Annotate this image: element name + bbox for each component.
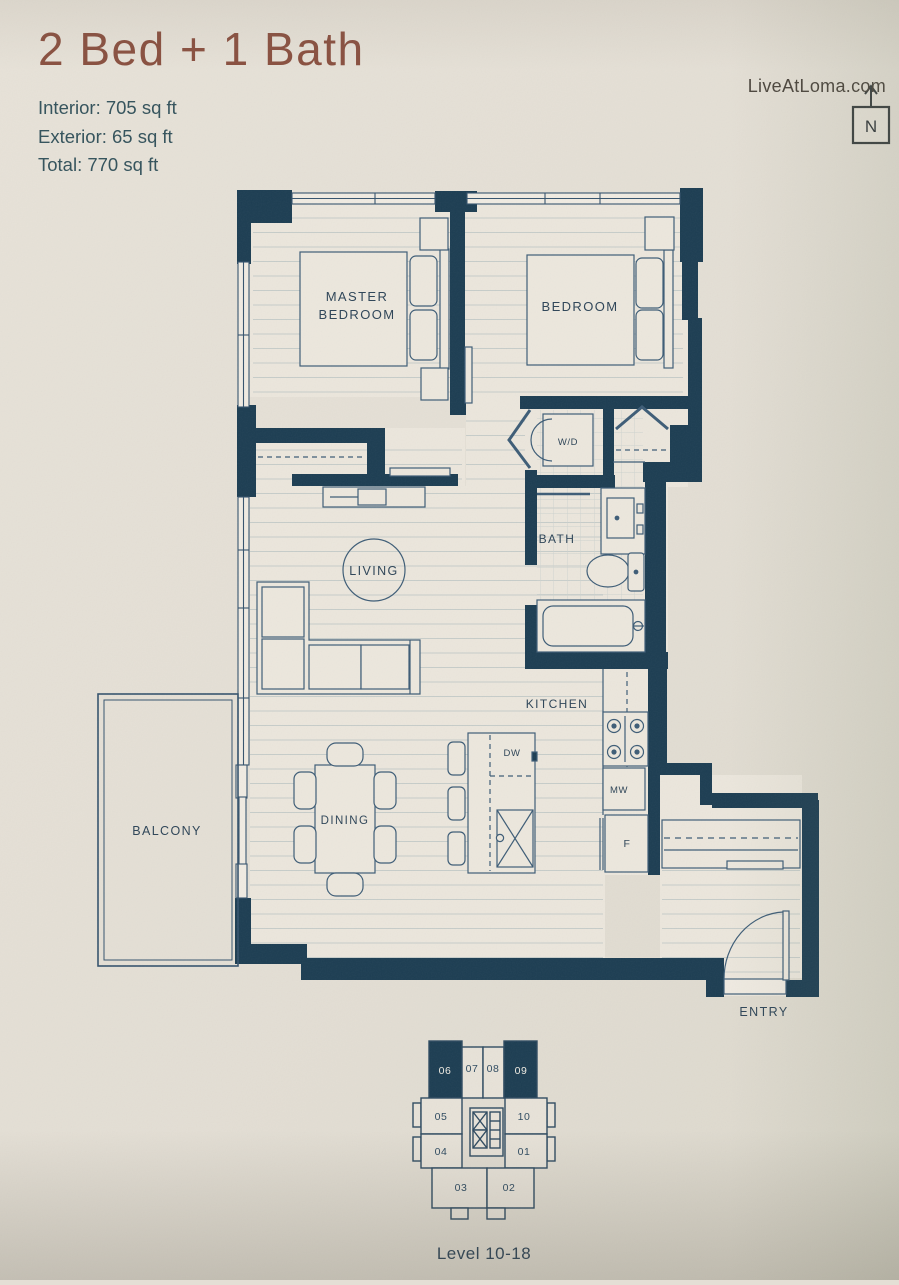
photo-shadow-right bbox=[729, 0, 899, 1280]
area-stats: Interior: 705 sq ft Exterior: 65 sq ft T… bbox=[38, 94, 177, 180]
floorplan-sheet: 2 Bed + 1 Bath LiveAtLoma.com Interior: … bbox=[0, 0, 899, 1280]
stat-exterior: Exterior: 65 sq ft bbox=[38, 123, 177, 152]
photo-shadow-bottom bbox=[0, 1130, 899, 1280]
stat-interior: Interior: 705 sq ft bbox=[38, 94, 177, 123]
stat-total: Total: 770 sq ft bbox=[38, 151, 177, 180]
